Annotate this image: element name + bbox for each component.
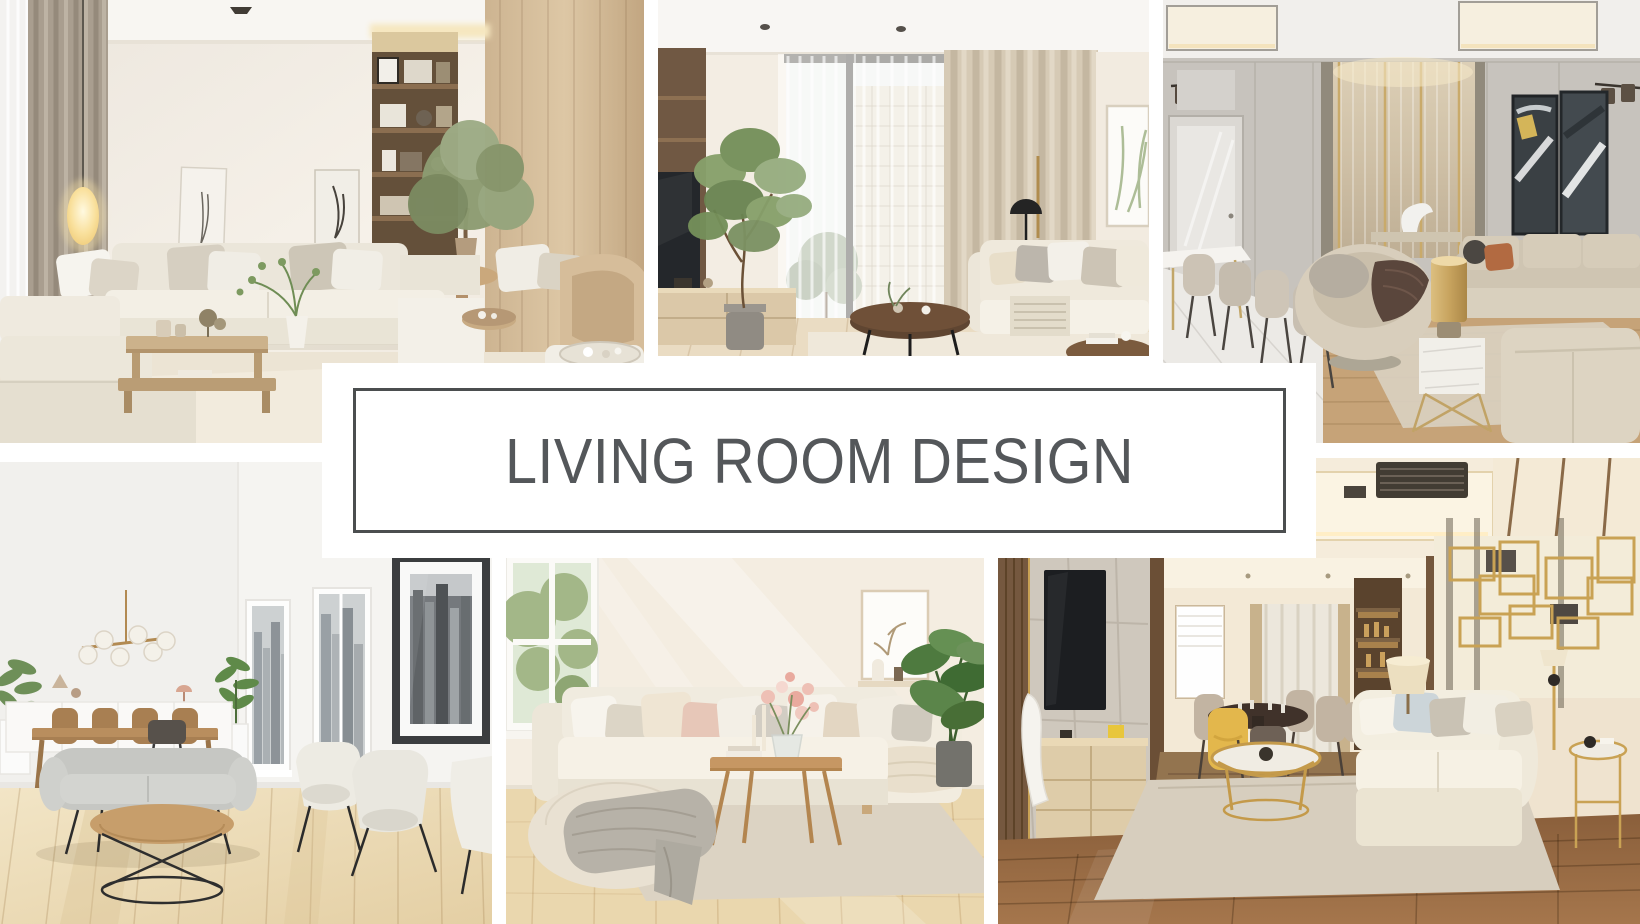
photo-illustration	[506, 557, 984, 924]
title-banner: LIVING ROOM DESIGN	[322, 363, 1316, 558]
photo-living-room-top-middle	[658, 0, 1149, 356]
photo-illustration	[658, 0, 1149, 356]
collage-canvas: LIVING ROOM DESIGN	[0, 0, 1640, 924]
photo-living-room-bottom-middle	[506, 557, 984, 924]
page-title: LIVING ROOM DESIGN	[505, 429, 1134, 493]
